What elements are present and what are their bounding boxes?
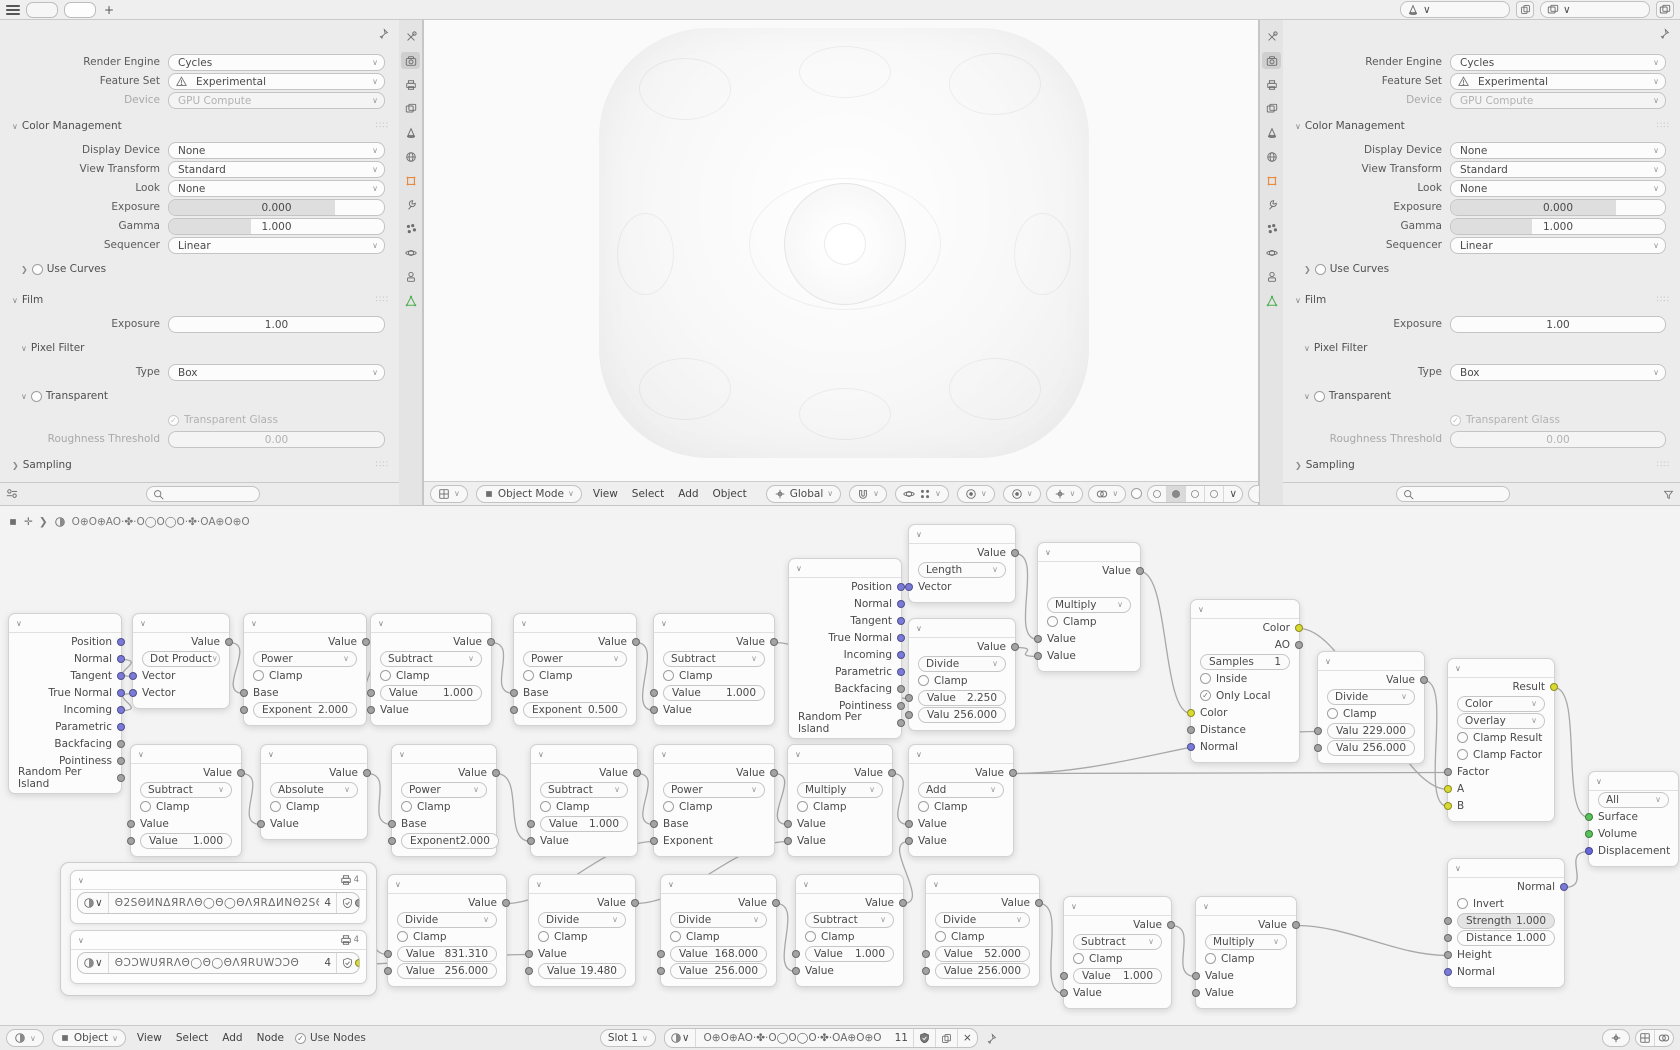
operation-select[interactable]: Divide∨: [918, 656, 1006, 672]
render-engine-select[interactable]: Cycles∨: [1450, 54, 1666, 71]
new-scene-button[interactable]: [1516, 1, 1534, 18]
node-header[interactable]: ∨: [1448, 659, 1554, 678]
output-socket[interactable]: [117, 774, 125, 782]
math-node[interactable]: ∨ValueSubtract∨ClampValue1.000Value: [795, 874, 904, 987]
view-layer-selector[interactable]: ∨: [1540, 1, 1650, 18]
roughness-threshold-slider[interactable]: 0.00: [1450, 431, 1666, 448]
subsection-transparent[interactable]: ∨Transparent: [21, 390, 108, 402]
output-socket[interactable]: [1550, 683, 1558, 691]
operation-select[interactable]: Divide∨: [670, 912, 767, 928]
output-socket[interactable]: [772, 899, 780, 907]
input-socket[interactable]: [784, 837, 792, 845]
input-socket[interactable]: [384, 967, 392, 975]
input-socket[interactable]: [922, 950, 930, 958]
value-field[interactable]: Exponent2.000: [253, 702, 357, 718]
value-field[interactable]: Strength1.000: [1457, 913, 1555, 929]
math-node[interactable]: ∨ValueSubtract∨ClampValue1.000Value: [370, 613, 492, 726]
input-socket[interactable]: [388, 820, 396, 828]
operation-select[interactable]: Multiply∨: [1047, 597, 1131, 613]
input-socket[interactable]: [127, 820, 135, 828]
gizmos-dropdown[interactable]: ∨: [1046, 485, 1084, 503]
subsection-transparent[interactable]: ∨Transparent: [1304, 390, 1391, 402]
section-header-sampling[interactable]: ❯Sampling: [1295, 459, 1355, 471]
section-header-color-management[interactable]: ∨Color Management: [1295, 120, 1405, 132]
exposure-slider[interactable]: 1.00: [168, 316, 385, 333]
feature-set-select[interactable]: Experimental∨: [168, 73, 385, 90]
node-header[interactable]: ∨: [909, 525, 1015, 544]
roughness-threshold-slider[interactable]: 0.00: [168, 431, 385, 448]
unlink-material-button[interactable]: ×: [958, 1029, 977, 1047]
output-socket[interactable]: [897, 583, 905, 591]
node-header[interactable]: ∨4: [71, 931, 366, 950]
node-header[interactable]: ∨: [371, 614, 491, 633]
operation-select[interactable]: Subtract∨: [805, 912, 894, 928]
math-node[interactable]: ∨ValueDivide∨ClampValueValue19.480: [528, 874, 636, 987]
value-field[interactable]: Value1.000: [1073, 968, 1162, 984]
operation-select[interactable]: Multiply∨: [797, 782, 883, 798]
clamp-checkbox[interactable]: [935, 931, 946, 942]
node-header[interactable]: ∨: [133, 614, 229, 633]
tab-viewlayer[interactable]: [401, 100, 420, 117]
operation-select[interactable]: Divide∨: [935, 912, 1030, 928]
show-object-types-dropdown[interactable]: ∨: [1003, 485, 1041, 503]
clamp-checkbox[interactable]: [1073, 953, 1084, 964]
tab-object[interactable]: [1262, 172, 1281, 189]
input-socket[interactable]: [1314, 727, 1322, 735]
only-local-checkbox[interactable]: [1200, 690, 1211, 701]
value-field[interactable]: Valu256.000: [918, 707, 1006, 723]
node-header[interactable]: ∨: [531, 745, 637, 764]
output-socket[interactable]: [1011, 549, 1019, 557]
menu-select[interactable]: Select: [629, 488, 667, 500]
shading-material-preview-button[interactable]: [1185, 486, 1204, 502]
output-socket[interactable]: [1292, 921, 1300, 929]
clamp-checkbox[interactable]: [1327, 708, 1338, 719]
tab-tool[interactable]: [401, 28, 420, 45]
clamp-checkbox[interactable]: [523, 670, 534, 681]
input-socket[interactable]: [129, 689, 137, 697]
operation-select[interactable]: Subtract∨: [380, 651, 482, 667]
operation-select[interactable]: Power∨: [401, 782, 487, 798]
scene-selector[interactable]: ∨: [1400, 1, 1510, 18]
input-socket[interactable]: [127, 837, 135, 845]
input-socket[interactable]: [527, 837, 535, 845]
clamp-checkbox[interactable]: [1047, 616, 1058, 627]
input-socket[interactable]: [1444, 934, 1452, 942]
shader-type-dropdown[interactable]: Object∨: [52, 1029, 126, 1047]
input-socket[interactable]: [1444, 968, 1452, 976]
input-socket[interactable]: [1444, 951, 1452, 959]
section-header-film[interactable]: ∨Film: [12, 294, 43, 306]
id-users-count[interactable]: 4: [319, 953, 337, 973]
browse-material-button[interactable]: ∨: [665, 1029, 696, 1047]
input-socket[interactable]: [792, 950, 800, 958]
output-socket[interactable]: [1035, 899, 1043, 907]
output-socket[interactable]: [1295, 624, 1303, 632]
value-field[interactable]: Exponent2.000: [401, 833, 499, 849]
operation-select[interactable]: Add∨: [918, 782, 1004, 798]
output-socket[interactable]: [897, 617, 905, 625]
clamp-result-checkbox[interactable]: [1457, 732, 1468, 743]
input-socket[interactable]: [1034, 635, 1042, 643]
sequencer-select[interactable]: Linear∨: [168, 237, 385, 254]
output-socket[interactable]: [888, 769, 896, 777]
input-socket[interactable]: [510, 689, 518, 697]
output-socket[interactable]: [1136, 567, 1144, 575]
exposure-slider[interactable]: 0.000: [1450, 199, 1666, 216]
menu-object[interactable]: Object: [710, 488, 750, 500]
inside-checkbox[interactable]: [1200, 673, 1211, 684]
input-socket[interactable]: [1060, 972, 1068, 980]
input-socket[interactable]: [384, 950, 392, 958]
look-select[interactable]: None∨: [1450, 180, 1666, 197]
clamp-checkbox[interactable]: [401, 801, 412, 812]
operation-select[interactable]: Subtract∨: [140, 782, 232, 798]
menu-add[interactable]: Add: [219, 1032, 245, 1044]
value-field[interactable]: Value1.000: [140, 833, 232, 849]
node-header[interactable]: ∨: [789, 559, 901, 578]
input-socket[interactable]: [367, 706, 375, 714]
tab-modifier[interactable]: [1262, 196, 1281, 213]
operation-select[interactable]: Divide∨: [538, 912, 626, 928]
output-socket[interactable]: [1167, 921, 1175, 929]
node-header[interactable]: ∨: [909, 745, 1013, 764]
operation-select[interactable]: Power∨: [253, 651, 357, 667]
math-node[interactable]: ∨ValueSubtract∨ClampValue1.000Value: [653, 613, 775, 726]
snap-dropdown[interactable]: ∨: [849, 485, 887, 503]
node-header[interactable]: ∨: [514, 614, 636, 633]
section-header-sampling[interactable]: ❯Sampling: [12, 459, 72, 471]
type-select[interactable]: Box∨: [1450, 364, 1666, 381]
app-menu-icon[interactable]: [6, 5, 20, 15]
use-curves-checkbox[interactable]: [1315, 264, 1326, 275]
tab-render[interactable]: [1262, 52, 1281, 69]
exposure-slider[interactable]: 1.00: [1450, 316, 1666, 333]
node-header[interactable]: ∨: [1196, 897, 1296, 916]
input-socket[interactable]: [1187, 709, 1195, 717]
value-field[interactable]: Value256.000: [670, 963, 767, 979]
node-header[interactable]: ∨: [392, 745, 496, 764]
menu-add[interactable]: Add: [675, 488, 701, 500]
subsection-pixel-filter[interactable]: ∨Pixel Filter: [21, 342, 85, 354]
tab-render[interactable]: [401, 52, 420, 69]
tab-world[interactable]: [401, 148, 420, 165]
tab-meshdata[interactable]: [401, 292, 420, 309]
orientation-dropdown[interactable]: Global∨: [766, 485, 841, 503]
remove-view-layer-button[interactable]: [1656, 1, 1674, 18]
input-socket[interactable]: [1444, 802, 1452, 810]
input-socket[interactable]: [1444, 785, 1452, 793]
operation-select[interactable]: Overlay∨: [1457, 713, 1545, 729]
material-name-field[interactable]: O⊕O⊕AO·✤·O◯O◯O·✤·OA⊕O⊕O: [696, 1032, 890, 1044]
output-socket[interactable]: [1560, 883, 1568, 891]
input-socket[interactable]: [129, 672, 137, 680]
clamp-checkbox[interactable]: [538, 931, 549, 942]
node-header[interactable]: ∨: [796, 875, 903, 894]
math-node[interactable]: ∨ValueLength∨Vector: [908, 524, 1016, 603]
proportional-edit-dropdown[interactable]: ∨: [895, 485, 949, 503]
feature-set-select[interactable]: Experimental∨: [1450, 73, 1666, 90]
math-node[interactable]: ∨ValuePower∨ClampBaseExponent: [653, 744, 775, 857]
input-socket[interactable]: [905, 820, 913, 828]
output-socket[interactable]: [117, 689, 125, 697]
value-field[interactable]: Value1.000: [805, 946, 894, 962]
look-select[interactable]: None∨: [168, 180, 385, 197]
display-device-select[interactable]: None∨: [1450, 142, 1666, 159]
math-node[interactable]: ∨ValueDot Product∨VectorVector: [132, 613, 230, 709]
device-select[interactable]: GPU Compute∨: [1450, 92, 1666, 109]
editor-type-button[interactable]: ∨: [6, 1029, 44, 1047]
id-name-field[interactable]: Θ2SΘИNΔЯRΛΘ◯Θ◯ΘΛЯRΔИNΘ2SΘ: [109, 897, 320, 909]
node-header[interactable]: ∨: [1318, 652, 1424, 671]
input-socket[interactable]: [905, 583, 913, 591]
input-socket[interactable]: [527, 820, 535, 828]
input-socket[interactable]: [1187, 726, 1195, 734]
input-socket[interactable]: [657, 967, 665, 975]
node-header[interactable]: ∨: [926, 875, 1039, 894]
input-socket[interactable]: [650, 820, 658, 828]
view-transform-select[interactable]: Standard∨: [168, 161, 385, 178]
tab-scene[interactable]: [401, 124, 420, 141]
input-socket[interactable]: [1585, 830, 1593, 838]
clamp-checkbox[interactable]: [918, 675, 929, 686]
math-node[interactable]: ∨All∨SurfaceVolumeDisplacement: [1588, 771, 1679, 867]
output-socket[interactable]: [492, 769, 500, 777]
output-socket[interactable]: [363, 769, 371, 777]
value-field[interactable]: Value52.000: [935, 946, 1030, 962]
input-socket[interactable]: [257, 820, 265, 828]
menu-view[interactable]: View: [134, 1032, 165, 1044]
collapsed-id-node[interactable]: ∨4∨ΘƆƆWUЯRΛΘ◯Θ◯ΘΛЯRUWƆƆΘ4: [70, 930, 367, 984]
shading-solid-button[interactable]: [1166, 486, 1185, 502]
input-socket[interactable]: [525, 950, 533, 958]
math-node[interactable]: ∨ValueSubtract∨ClampValue1.000Value: [530, 744, 638, 857]
output-socket[interactable]: [117, 672, 125, 680]
clamp-checkbox[interactable]: [253, 670, 264, 681]
output-socket[interactable]: [1009, 769, 1017, 777]
clamp-checkbox[interactable]: [663, 670, 674, 681]
properties-search-input[interactable]: [1396, 486, 1510, 502]
xray-toggle[interactable]: [1131, 488, 1142, 499]
tab-scene[interactable]: [1262, 124, 1281, 141]
output-socket[interactable]: [117, 757, 125, 765]
math-node[interactable]: ∨ValueSubtract∨ClampValueValue1.000: [130, 744, 242, 857]
render-engine-select[interactable]: Cycles∨: [168, 54, 385, 71]
menu-select[interactable]: Select: [173, 1032, 211, 1044]
tab-physics[interactable]: [1262, 244, 1281, 261]
math-node[interactable]: ∨NormalInvertStrength1.000Distance1.000H…: [1447, 858, 1565, 988]
split-options-button[interactable]: [1654, 1030, 1673, 1046]
math-node[interactable]: ∨ValueDivide∨ClampValu229.000Valu256.000: [1317, 651, 1425, 764]
use-nodes-toggle[interactable]: Use Nodes: [295, 1032, 366, 1044]
math-node[interactable]: ∨ValueDivide∨ClampValue2.250Valu256.000: [908, 618, 1016, 731]
output-socket[interactable]: [355, 899, 360, 907]
pin-icon[interactable]: [378, 28, 389, 39]
mode-dropdown[interactable]: Object Mode∨: [476, 485, 582, 503]
math-node[interactable]: ∨PositionNormalTangentTrue NormalIncomin…: [8, 613, 122, 794]
math-node[interactable]: ∨ValueMultiply∨ClampValueValue: [787, 744, 893, 857]
clamp-checkbox[interactable]: [397, 931, 408, 942]
input-socket[interactable]: [1060, 989, 1068, 997]
node-header[interactable]: ∨: [244, 614, 366, 633]
tab-viewlayer[interactable]: [1262, 100, 1281, 117]
tab-meshdata[interactable]: [1262, 292, 1281, 309]
output-socket[interactable]: [1420, 676, 1428, 684]
input-socket[interactable]: [905, 694, 913, 702]
node-header[interactable]: ∨: [1589, 772, 1678, 791]
math-node[interactable]: ∨ValuePower∨ClampBaseExponent0.500: [513, 613, 637, 726]
output-socket[interactable]: [897, 719, 905, 727]
input-socket[interactable]: [1585, 847, 1593, 855]
output-socket[interactable]: [355, 959, 360, 967]
math-node[interactable]: ∨ValueMultiply∨ClampValueValue: [1037, 542, 1141, 672]
output-socket[interactable]: [1295, 641, 1303, 649]
input-socket[interactable]: [240, 706, 248, 714]
transparent-checkbox[interactable]: [1314, 391, 1325, 402]
browse-id-button[interactable]: ∨: [78, 893, 109, 913]
node-header[interactable]: ∨: [788, 745, 892, 764]
value-field[interactable]: Value256.000: [397, 963, 497, 979]
fake-user-shield-button[interactable]: [914, 1029, 936, 1047]
output-socket[interactable]: [117, 638, 125, 646]
invert-checkbox[interactable]: [1457, 898, 1468, 909]
input-socket[interactable]: [1192, 989, 1200, 997]
sequencer-select[interactable]: Linear∨: [1450, 237, 1666, 254]
output-socket[interactable]: [631, 899, 639, 907]
shader-node-editor[interactable]: ∨4∨Θ2SΘИNΔЯRΛΘ◯Θ◯ΘΛЯRΔИNΘ2SΘ4∨4∨ΘƆƆWUЯRΛ…: [0, 505, 1680, 1050]
node-header[interactable]: ∨: [261, 745, 367, 764]
clamp-checkbox[interactable]: [540, 801, 551, 812]
value-field[interactable]: Value1.000: [380, 685, 482, 701]
clamp-checkbox[interactable]: [270, 801, 281, 812]
value-field[interactable]: Value256.000: [935, 963, 1030, 979]
copy-material-button[interactable]: [936, 1029, 958, 1047]
node-header[interactable]: ∨: [909, 619, 1015, 638]
output-socket[interactable]: [487, 638, 495, 646]
shading-dropdown[interactable]: ∨: [1223, 486, 1242, 502]
math-node[interactable]: ∨ColorAOSamples1InsideOnly LocalColorDis…: [1190, 599, 1300, 763]
filter-icon-button[interactable]: [1663, 489, 1674, 500]
id-name-field[interactable]: ΘƆƆWUЯRΛΘ◯Θ◯ΘΛЯRUWƆƆΘ: [109, 957, 320, 969]
tab-tool[interactable]: [1262, 28, 1281, 45]
clamp-checkbox[interactable]: [805, 931, 816, 942]
math-node[interactable]: ∨ValueDivide∨ClampValue52.000Value256.00…: [925, 874, 1040, 987]
output-socket[interactable]: [770, 638, 778, 646]
shading-rendered-button[interactable]: [1204, 486, 1223, 502]
workspace-tab[interactable]: [26, 2, 58, 18]
value-field[interactable]: Value2.250: [918, 690, 1006, 706]
node-header[interactable]: ∨: [1191, 600, 1299, 619]
section-header-film[interactable]: ∨Film: [1295, 294, 1326, 306]
output-socket[interactable]: [897, 668, 905, 676]
collapsed-id-node[interactable]: ∨4∨Θ2SΘИNΔЯRΛΘ◯Θ◯ΘΛЯRΔИNΘ2SΘ4: [70, 870, 367, 924]
clamp-checkbox[interactable]: [670, 931, 681, 942]
math-node[interactable]: ∨ValueDivide∨ClampValue168.000Value256.0…: [660, 874, 777, 987]
add-workspace-button[interactable]: +: [102, 3, 116, 17]
falloff-dropdown[interactable]: ∨: [957, 485, 995, 503]
id-users-count[interactable]: 4: [319, 893, 337, 913]
workspace-tab[interactable]: [64, 2, 96, 18]
output-socket[interactable]: [897, 702, 905, 710]
output-socket[interactable]: [897, 600, 905, 608]
gamma-slider[interactable]: 1.000: [168, 218, 385, 235]
slot-dropdown[interactable]: Slot 1∨: [600, 1029, 656, 1047]
gamma-slider[interactable]: 1.000: [1450, 218, 1666, 235]
value-field[interactable]: Exponent0.500: [523, 702, 627, 718]
browse-id-button[interactable]: ∨: [78, 953, 109, 973]
material-users-count[interactable]: 11: [890, 1029, 914, 1047]
input-socket[interactable]: [1585, 813, 1593, 821]
input-socket[interactable]: [510, 706, 518, 714]
operation-select[interactable]: All∨: [1598, 792, 1669, 808]
math-node[interactable]: ∨ValuePower∨ClampBaseExponent2.000: [391, 744, 497, 857]
value-field[interactable]: Samples1: [1200, 654, 1290, 670]
output-socket[interactable]: [117, 723, 125, 731]
input-socket[interactable]: [905, 711, 913, 719]
operation-select[interactable]: Divide∨: [397, 912, 497, 928]
menu-node[interactable]: Node: [254, 1032, 287, 1044]
operation-select[interactable]: Divide∨: [1327, 689, 1415, 705]
device-select[interactable]: GPU Compute∨: [168, 92, 385, 109]
tab-output[interactable]: [401, 76, 420, 93]
clamp-checkbox[interactable]: [797, 801, 808, 812]
output-socket[interactable]: [117, 655, 125, 663]
display-device-select[interactable]: None∨: [168, 142, 385, 159]
overlays-dropdown[interactable]: ∨: [1088, 485, 1126, 503]
input-socket[interactable]: [240, 689, 248, 697]
pin-icon-button[interactable]: [986, 1033, 997, 1044]
node-header[interactable]: ∨: [9, 614, 121, 633]
output-socket[interactable]: [897, 685, 905, 693]
input-socket[interactable]: [1192, 972, 1200, 980]
node-header[interactable]: ∨: [1448, 859, 1564, 878]
input-socket[interactable]: [922, 967, 930, 975]
exposure-slider[interactable]: 0.000: [168, 199, 385, 216]
clamp-checkbox[interactable]: [380, 670, 391, 681]
operation-select[interactable]: Absolute∨: [270, 782, 358, 798]
value-field[interactable]: Valu256.000: [1327, 740, 1415, 756]
type-select[interactable]: Box∨: [168, 364, 385, 381]
use-curves-checkbox[interactable]: [32, 264, 43, 275]
math-node[interactable]: ∨ValueAbsolute∨ClampValue: [260, 744, 368, 840]
tab-output[interactable]: [1262, 76, 1281, 93]
operation-select[interactable]: Length∨: [918, 562, 1006, 578]
clamp-checkbox[interactable]: [1205, 953, 1216, 964]
node-header[interactable]: ∨: [529, 875, 635, 894]
tab-modifier[interactable]: [401, 196, 420, 213]
clamp-checkbox[interactable]: [918, 801, 929, 812]
node-header[interactable]: ∨: [654, 614, 774, 633]
input-socket[interactable]: [905, 837, 913, 845]
tab-world[interactable]: [1262, 148, 1281, 165]
output-socket[interactable]: [362, 638, 370, 646]
clamp-checkbox[interactable]: [140, 801, 151, 812]
menu-view[interactable]: View: [590, 488, 621, 500]
view-transform-select[interactable]: Standard∨: [1450, 161, 1666, 178]
input-socket[interactable]: [650, 837, 658, 845]
input-socket[interactable]: [650, 689, 658, 697]
operation-select[interactable]: Dot Product∨: [142, 651, 220, 667]
use-nodes-checkbox[interactable]: [295, 1033, 306, 1044]
transparent-glass-checkbox[interactable]: [1450, 415, 1461, 426]
math-node[interactable]: ∨ValueDivide∨ClampValue831.310Value256.0…: [387, 874, 507, 987]
transparent-glass-checkbox[interactable]: [168, 415, 179, 426]
operation-select[interactable]: Color∨: [1457, 696, 1545, 712]
input-socket[interactable]: [388, 837, 396, 845]
output-socket[interactable]: [897, 634, 905, 642]
node-header[interactable]: ∨: [131, 745, 241, 764]
math-node[interactable]: ∨ResultColor∨Overlay∨Clamp ResultClamp F…: [1447, 658, 1555, 822]
